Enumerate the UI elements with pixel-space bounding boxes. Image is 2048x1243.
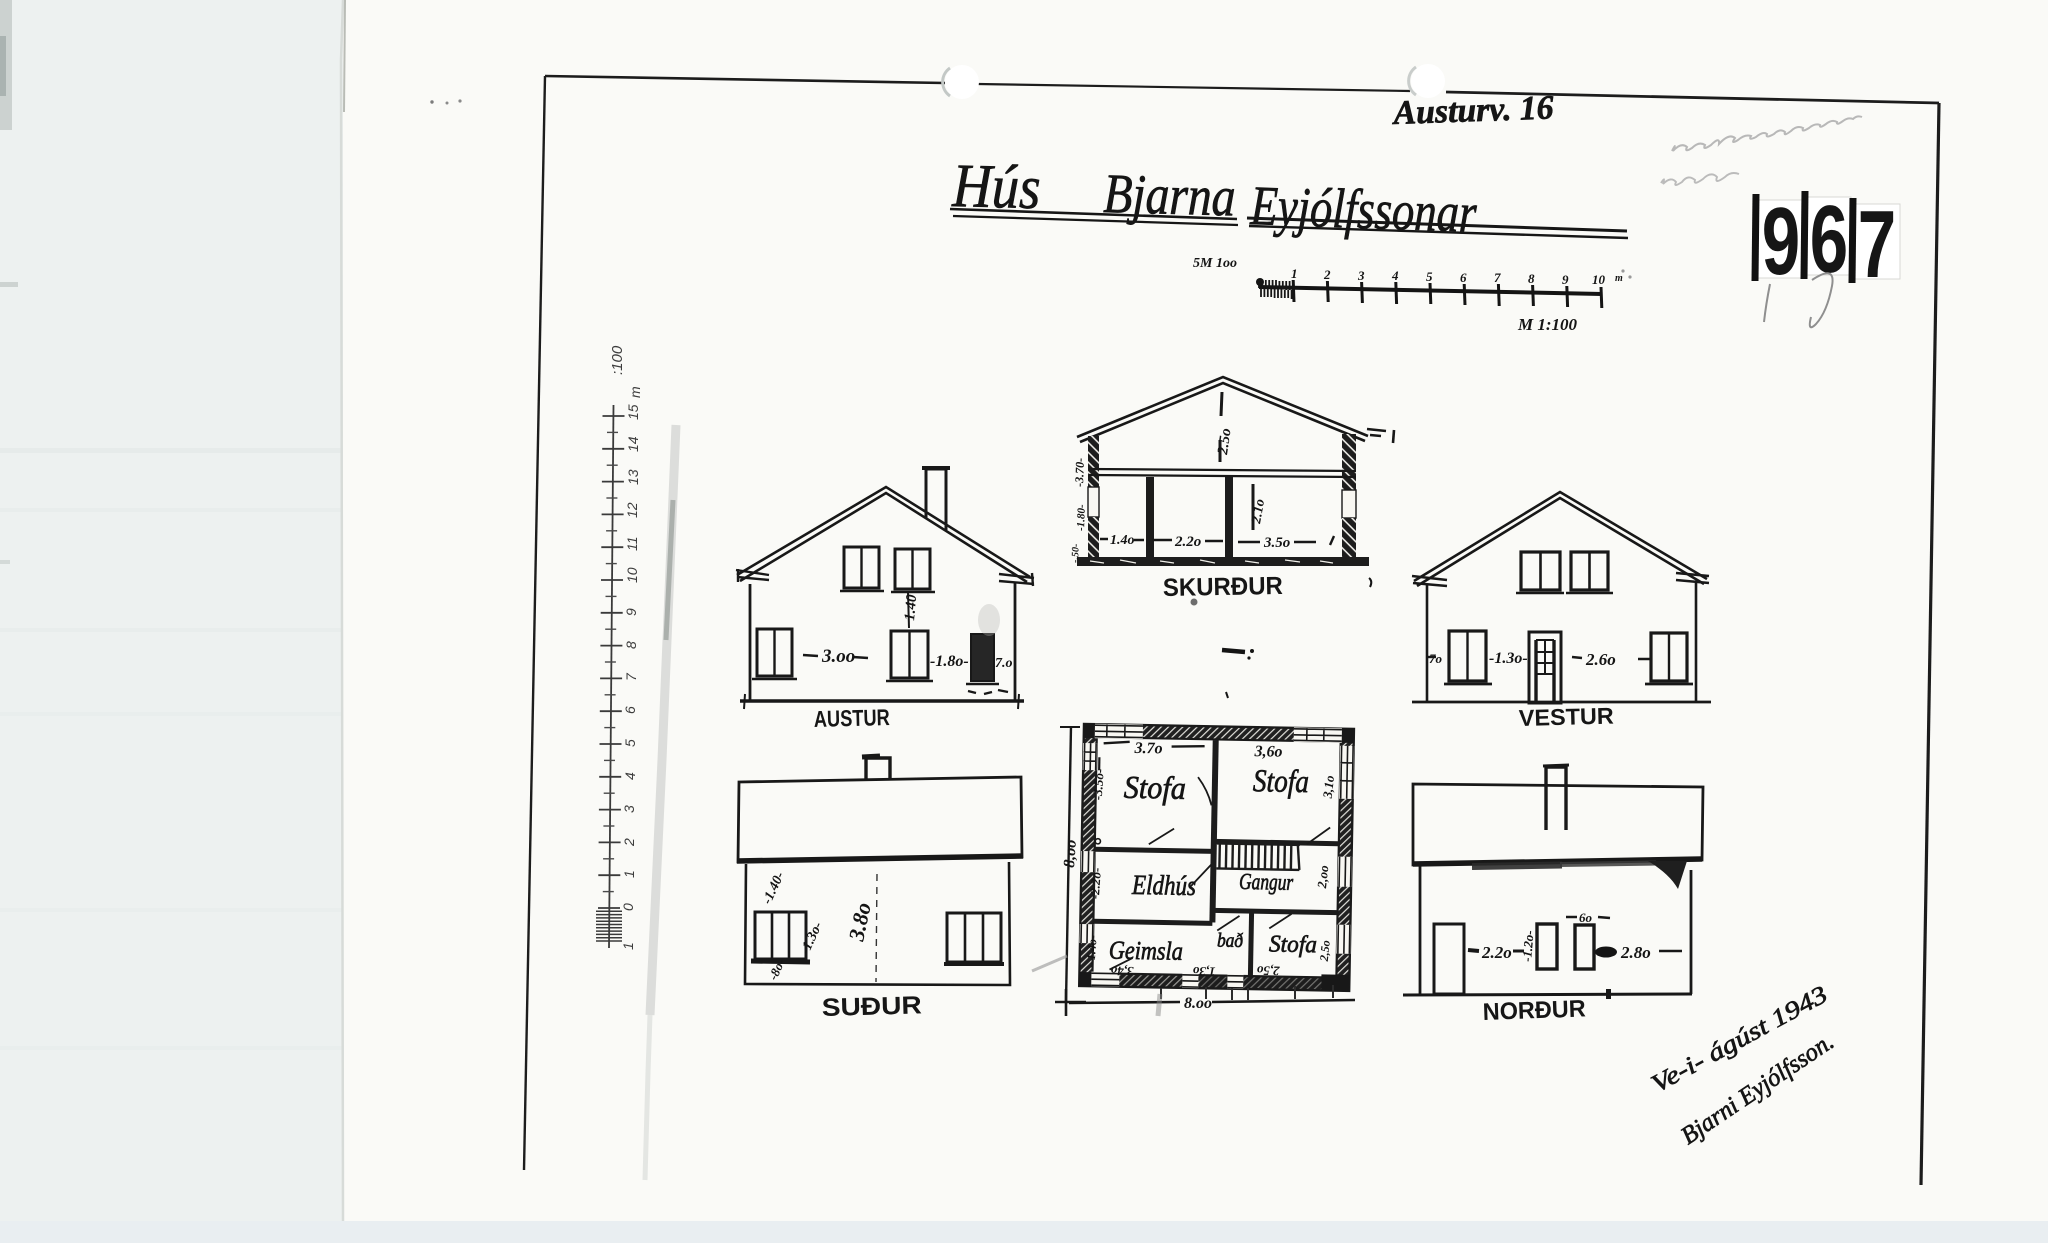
svg-text:2: 2 xyxy=(1323,267,1331,282)
svg-text:9: 9 xyxy=(1762,187,1800,295)
svg-text::100: :100 xyxy=(609,345,626,375)
svg-text:Stofa: Stofa xyxy=(1269,931,1317,958)
svg-text:3,4o: 3,4o xyxy=(1110,964,1135,979)
svg-text:1: 1 xyxy=(620,942,636,950)
svg-text:1: 1 xyxy=(621,870,637,878)
svg-text:-1.2o-: -1.2o- xyxy=(1519,930,1537,963)
svg-text:3: 3 xyxy=(1357,268,1365,283)
svg-text:10: 10 xyxy=(1592,272,1606,287)
svg-text:m: m xyxy=(1615,273,1623,284)
svg-text:2,5o: 2,5o xyxy=(1317,939,1333,962)
svg-text:11: 11 xyxy=(624,536,640,551)
svg-text:3.7o: 3.7o xyxy=(1133,740,1162,758)
svg-text:6o: 6o xyxy=(1579,910,1593,925)
svg-text:2.6o: 2.6o xyxy=(1585,650,1616,669)
svg-text:2,5o: 2,5o xyxy=(1256,963,1281,978)
svg-text:8: 8 xyxy=(1528,271,1535,286)
svg-text:1: 1 xyxy=(1291,266,1298,281)
svg-text:2,oo: 2,oo xyxy=(1314,864,1331,890)
svg-text:-1.80-: -1.80- xyxy=(1075,504,1088,531)
svg-text:Geimsla: Geimsla xyxy=(1109,935,1184,965)
svg-text:-2.2o-: -2.2o- xyxy=(1087,867,1104,899)
svg-text:6: 6 xyxy=(1810,185,1848,293)
svg-text:Eldhús: Eldhús xyxy=(1131,870,1196,902)
svg-text:1,3o: 1,3o xyxy=(1192,964,1216,979)
svg-text:-1.4o-: -1.4o- xyxy=(1084,935,1100,965)
svg-text:6: 6 xyxy=(1460,270,1467,285)
svg-text:Stofa: Stofa xyxy=(1253,762,1310,799)
svg-text:0: 0 xyxy=(620,903,636,911)
svg-text:13: 13 xyxy=(625,469,641,485)
svg-text:3: 3 xyxy=(621,805,637,813)
svg-text:5M 1oo: 5M 1oo xyxy=(1193,256,1237,271)
svg-text:7.o: 7.o xyxy=(995,656,1013,671)
svg-text:Gangur: Gangur xyxy=(1239,869,1294,895)
svg-text:Austurv. 16: Austurv. 16 xyxy=(1391,89,1554,132)
svg-text:1.4o: 1.4o xyxy=(1110,533,1135,548)
svg-text:VESTUR: VESTUR xyxy=(1518,703,1614,731)
svg-text:3.5o: 3.5o xyxy=(1263,535,1290,551)
svg-text:4: 4 xyxy=(622,772,638,780)
svg-text:7: 7 xyxy=(623,672,639,681)
svg-text:SUÐUR: SUÐUR xyxy=(821,991,922,1022)
svg-text:2.2o: 2.2o xyxy=(1174,534,1201,550)
svg-text:10: 10 xyxy=(624,567,640,583)
svg-text:4: 4 xyxy=(1391,268,1399,283)
svg-text:8,oo: 8,oo xyxy=(1061,839,1080,868)
svg-text:Stofa: Stofa xyxy=(1124,769,1187,806)
svg-text:SKURÐUR: SKURÐUR xyxy=(1163,572,1283,602)
svg-text:3,6o: 3,6o xyxy=(1253,743,1282,761)
svg-text:15: 15 xyxy=(625,404,641,420)
svg-text:2: 2 xyxy=(621,838,637,847)
svg-text:-1.3o-: -1.3o- xyxy=(1489,650,1528,667)
svg-text:2.2o: 2.2o xyxy=(1481,943,1512,962)
svg-text:-3.5o-: -3.5o- xyxy=(1090,768,1107,800)
svg-text:9: 9 xyxy=(1562,272,1569,287)
svg-text:7: 7 xyxy=(1494,270,1501,285)
svg-text:-.50-: -.50- xyxy=(1070,544,1082,564)
svg-text:14: 14 xyxy=(625,436,641,452)
svg-text:-1.8o-: -1.8o- xyxy=(930,653,969,670)
svg-text:bað: bað xyxy=(1217,929,1243,951)
svg-text:m: m xyxy=(627,386,643,398)
svg-text:5: 5 xyxy=(622,739,638,747)
svg-text:6: 6 xyxy=(622,706,638,714)
svg-text:7: 7 xyxy=(1858,190,1896,298)
svg-text:9: 9 xyxy=(623,608,639,616)
svg-text:-3.70-: -3.70- xyxy=(1072,458,1087,487)
svg-text:2.8o: 2.8o xyxy=(1620,943,1651,962)
svg-text:Eyjólfssonar: Eyjólfssonar xyxy=(1249,175,1478,245)
svg-text:M 1:100: M 1:100 xyxy=(1517,315,1578,334)
svg-text:3.oo: 3.oo xyxy=(821,646,855,667)
svg-text:NORÐUR: NORÐUR xyxy=(1482,995,1586,1026)
svg-text:8.oo: 8.oo xyxy=(1184,995,1212,1012)
svg-text:8: 8 xyxy=(623,641,639,649)
svg-text:1.40: 1.40 xyxy=(902,593,920,621)
svg-text:3,1o: 3,1o xyxy=(1320,774,1337,800)
svg-text:AUSTUR: AUSTUR xyxy=(813,704,890,732)
svg-text:12: 12 xyxy=(624,502,640,518)
svg-text:7o: 7o xyxy=(1429,651,1443,666)
svg-text:5: 5 xyxy=(1426,269,1433,284)
